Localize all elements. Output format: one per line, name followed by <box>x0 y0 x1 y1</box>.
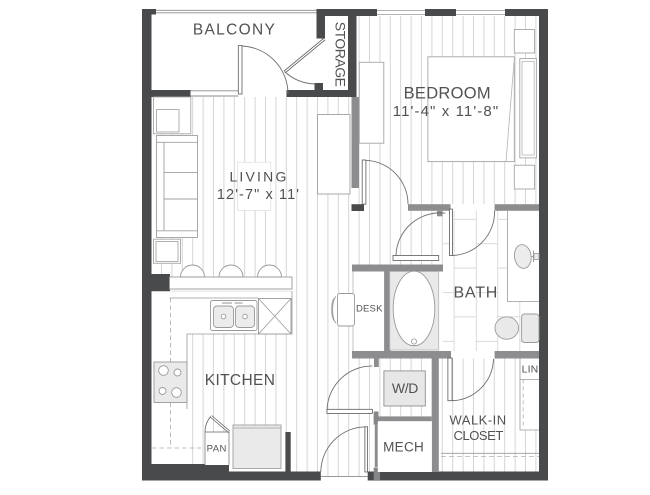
svg-text:BALCONY: BALCONY <box>193 22 276 39</box>
svg-text:12'-7" x 11': 12'-7" x 11' <box>217 187 300 203</box>
svg-text:DESK: DESK <box>356 304 383 315</box>
svg-text:WALK-IN: WALK-IN <box>449 413 506 428</box>
svg-text:PAN: PAN <box>207 444 227 455</box>
svg-text:CLOSET: CLOSET <box>454 428 504 443</box>
svg-text:MECH: MECH <box>383 440 424 455</box>
svg-text:W/D: W/D <box>392 380 418 396</box>
svg-text:KITCHEN: KITCHEN <box>205 372 275 389</box>
svg-text:BEDROOM: BEDROOM <box>404 85 491 103</box>
svg-text:11'-4" x 11'-8": 11'-4" x 11'-8" <box>393 103 500 120</box>
svg-text:STORAGE: STORAGE <box>332 22 348 87</box>
svg-text:BATH: BATH <box>453 284 498 301</box>
svg-text:LIN: LIN <box>522 363 539 375</box>
svg-text:LIVING: LIVING <box>229 168 288 184</box>
